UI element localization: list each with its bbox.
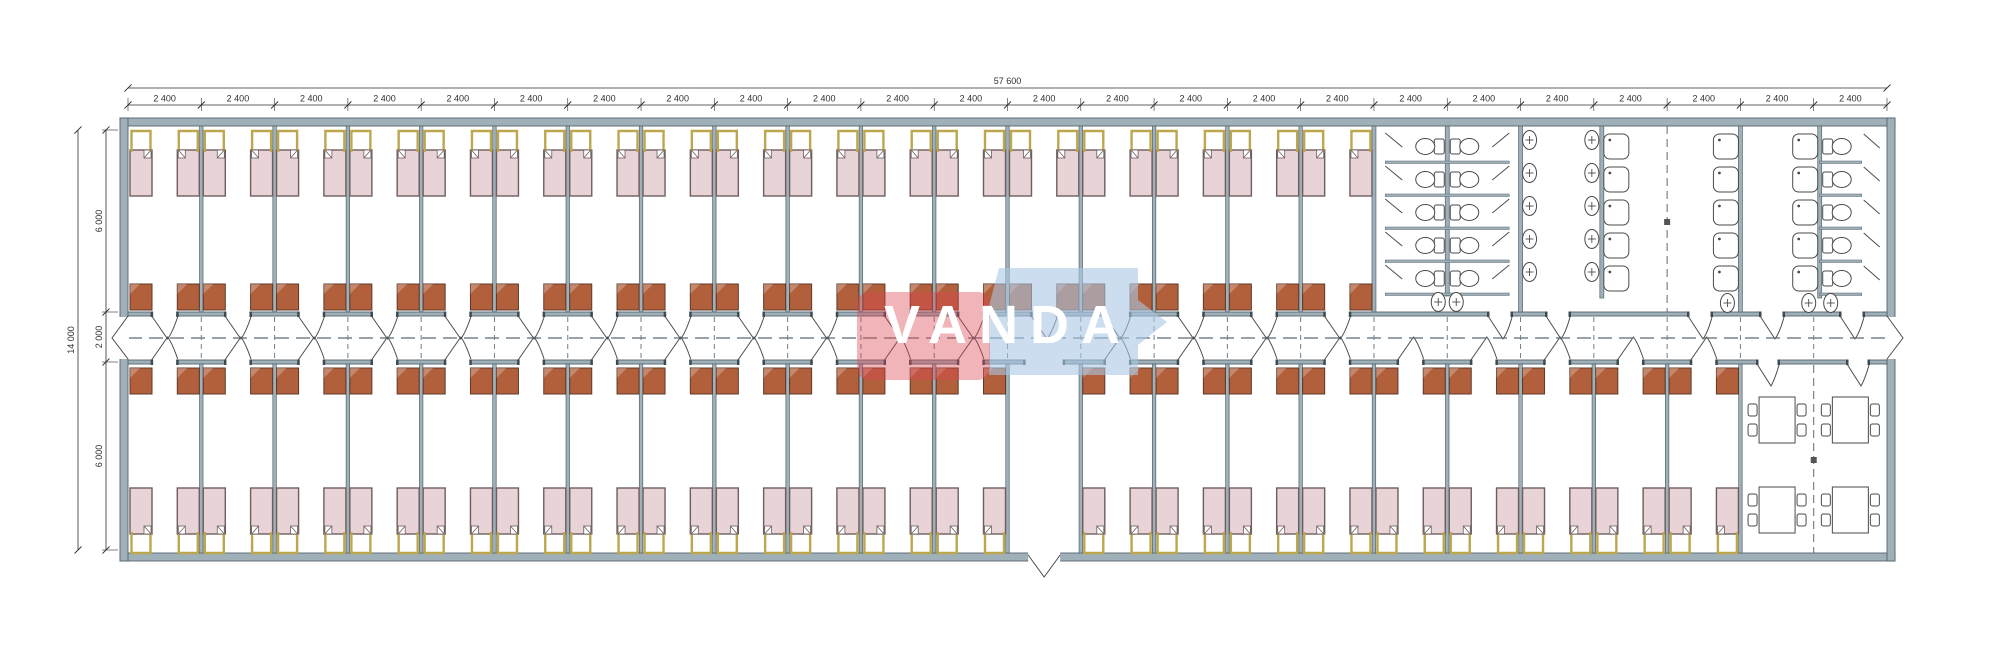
door-jamb [151,360,154,366]
dimension-label: 2 400 [1546,94,1569,104]
bed-headboard [351,532,370,553]
corridor-wall-bottom [471,360,518,364]
door-jamb [1690,360,1693,366]
door-jamb [590,360,593,366]
bed-headboard [1498,532,1517,553]
corridor-wall-bottom [1717,360,1757,364]
dimension-label: 2 400 [886,94,909,104]
corridor-wall-bottom [1204,360,1251,364]
chair [1821,494,1830,506]
door-swing [1178,337,1204,360]
partition-wall-top [346,126,350,312]
shower-drain [1797,172,1800,175]
bed-headboard [912,131,931,152]
watermark-text: VANDA [884,295,1132,355]
dimension-label: 2 400 [960,94,983,104]
corridor-wall-bottom [544,360,591,364]
door-swing [591,316,617,339]
bed-headboard [498,131,517,152]
bed-headboard [179,131,198,152]
bed-headboard [545,532,564,553]
toilet-bowl [1416,139,1435,155]
bed-headboard [1058,131,1077,152]
corridor-wall-top [324,312,371,316]
door-swing [372,337,398,360]
corridor-wall-top [1712,312,1760,316]
door-jamb [1276,360,1279,366]
bed-headboard [1304,131,1323,152]
shower-drain [1608,205,1611,208]
partition-wall-bottom [493,364,497,553]
entrance [1028,552,1060,577]
corridor-wall-bottom [617,360,664,364]
partition-wall-top [419,126,423,312]
chair [1748,494,1757,506]
exterior-wall-top [120,118,1895,126]
bed-headboard [1231,131,1250,152]
toilet-cistern [1434,271,1444,286]
bed-headboard [205,131,224,152]
door-jamb [1783,312,1786,318]
door-swing [298,316,324,339]
bed-headboard [765,532,784,553]
dimension-label: 2 400 [520,94,543,104]
partition-wall-top [1299,126,1303,312]
bed-headboard [645,131,664,152]
chair [1797,494,1806,506]
partition-wall-bottom [1592,364,1596,553]
bed-headboard [1524,532,1543,553]
shower-tray [1713,167,1738,192]
dimension-label: 2 400 [1839,94,1862,104]
stall-partition [1385,227,1509,230]
door-jamb [469,312,472,318]
stall-door [1385,166,1402,180]
bed-headboard [425,532,444,553]
shower-drain [1608,271,1611,274]
bed-headboard [1718,532,1737,553]
shower-tray [1604,134,1629,159]
door-jamb [1778,360,1781,366]
corridor-wall-bottom [398,360,445,364]
door-jamb [689,360,692,366]
corridor-wall-bottom [128,360,152,364]
door-jamb [1569,312,1572,318]
corridor-wall-bottom [1869,360,1887,364]
toilet-cistern [1450,172,1460,187]
partition-wall-bottom [1299,364,1303,553]
partition-wall-bottom [566,364,570,553]
stall-door [1385,232,1402,246]
dimension-label: 2 400 [1106,94,1129,104]
stall-door [1492,133,1509,147]
door-swing [1617,337,1643,360]
bed-headboard [718,532,737,553]
door-swing [1847,364,1869,386]
wall-opening [1886,317,1896,359]
shower-tray [1713,200,1738,225]
dimension-label: 2 400 [1473,94,1496,104]
corridor-wall-top [544,312,591,316]
sanitary-wall [1600,126,1604,298]
door-swing [445,337,471,360]
door-swing [518,316,544,339]
toilet-bowl [1416,238,1435,254]
stall-door [1864,134,1880,148]
door-jamb [664,360,667,366]
door-jamb [616,360,619,366]
partition-wall-top [273,126,277,312]
bed-headboard [325,532,344,553]
shower-drain [1797,139,1800,142]
stall-door [1864,167,1880,181]
corridor-wall-bottom [251,360,298,364]
corridor-wall-top [128,312,152,316]
stall-partition [1820,260,1862,263]
bed-headboard [1011,131,1030,152]
toilet-bowl [1832,172,1851,188]
watermark-logo: VANDA [857,268,1167,380]
shower-tray [1604,266,1629,291]
door-jamb [224,360,227,366]
door-jamb [176,312,179,318]
bed-headboard [1451,532,1470,553]
bed-headboard [718,131,737,152]
corridor-wall-top [1350,312,1488,316]
chair [1821,404,1830,416]
sanitary-wall [1519,126,1523,312]
toilet-bowl [1460,205,1479,221]
partition-wall-bottom [1152,364,1156,553]
toilet-cistern [1450,205,1460,220]
door-swing [591,337,617,360]
door-jamb [836,312,839,318]
partition-wall-top [566,126,570,312]
door-swing [225,316,251,339]
chair [1821,514,1830,526]
corridor-wall-top [398,312,445,316]
door-jamb [323,312,326,318]
chair [1870,424,1879,436]
toilet-cistern [1823,139,1833,154]
door-jamb [543,360,546,366]
dimension-label: 2 000 [94,326,104,349]
chair [1870,404,1879,416]
door-swing [1324,316,1350,339]
door-swing [445,316,471,339]
toilet-bowl [1416,205,1435,221]
dimension-label: 2 400 [1253,94,1276,104]
dimension-label: 2 400 [373,94,396,104]
toilet-cistern [1450,271,1460,286]
sanitary-wall [1738,126,1742,312]
door-jamb [1470,360,1473,366]
bed-headboard [1351,532,1370,553]
corridor-wall-bottom [1779,360,1847,364]
bed-headboard [205,532,224,553]
toilet-cistern [1450,139,1460,154]
dimension-label: 2 400 [447,94,470,104]
shower-drain [1718,205,1721,208]
chair [1870,514,1879,526]
door-jamb [396,360,399,366]
partition-wall-top [1152,126,1156,312]
shower-tray [1604,167,1629,192]
corridor-wall-bottom [1643,360,1690,364]
door-jamb [469,360,472,366]
partition-wall-bottom [419,364,423,553]
sanitary-wall [1818,126,1822,298]
shower-drain [1608,238,1611,241]
bed-headboard [1205,532,1224,553]
dimension-label: 2 400 [740,94,763,104]
door-jamb [1177,360,1180,366]
toilet-bowl [1416,271,1435,287]
door-swing [1251,316,1277,339]
stall-partition [1820,194,1862,197]
bed-headboard [571,131,590,152]
section-marker [1811,457,1817,463]
dining-table [1832,397,1868,443]
door-jamb [1715,360,1718,366]
stall-door [1864,233,1880,247]
door-swing [1178,316,1204,339]
door-jamb [323,360,326,366]
corridor-wall-top [1277,312,1324,316]
partition-wall-top [200,126,204,312]
dimension-label: 2 400 [1619,94,1642,104]
sanitary-wall [1445,126,1449,296]
bed-headboard [838,532,857,553]
shower-tray [1604,233,1629,258]
shower-drain [1608,139,1611,142]
stall-door [1492,265,1509,279]
corridor-wall-bottom [764,360,811,364]
partition-wall-bottom [1226,364,1230,553]
shower-drain [1718,271,1721,274]
bed-headboard [325,131,344,152]
door-jamb [297,360,300,366]
partition-wall-bottom [786,364,790,553]
door-jamb [396,312,399,318]
bed-headboard [179,532,198,553]
door-jamb [762,360,765,366]
partition-wall-top [786,126,790,312]
bed-headboard [1377,532,1396,553]
bed-headboard [791,131,810,152]
door-swing [372,316,398,339]
bed-headboard [1351,131,1370,152]
bed-headboard [1304,532,1323,553]
shower-tray [1713,134,1738,159]
toilet-cistern [1434,139,1444,154]
door-jamb [836,360,839,366]
corridor-wall-top [764,312,811,316]
bed-headboard [1571,532,1590,553]
corridor-wall-bottom [1497,360,1544,364]
dimension-label: 2 400 [1693,94,1716,104]
stall-door [1492,232,1509,246]
dimension-label: 14 000 [66,326,76,354]
door-jamb [810,360,813,366]
door-jamb [543,312,546,318]
bed-headboard [498,532,517,553]
partition-wall-bottom [1739,364,1743,553]
bed-headboard [619,532,638,553]
partition-wall-bottom [713,364,717,553]
bed-headboard [692,532,711,553]
bed-headboard [1205,131,1224,152]
corridor-wall-top [1570,312,1688,316]
toilet-cistern [1450,238,1460,253]
dimension-label: 57 600 [994,76,1022,86]
toilet-bowl [1832,205,1851,221]
stall-door [1864,200,1880,214]
corridor-wall-bottom [178,360,225,364]
door-jamb [689,312,692,318]
door-jamb [249,312,252,318]
door-jamb [1616,360,1619,366]
door-jamb [176,360,179,366]
stall-partition [1385,260,1509,263]
partition-wall-bottom [1079,364,1083,553]
shower-tray [1713,233,1738,258]
door-swing [811,337,837,360]
shower-tray [1713,266,1738,291]
door-jamb [1863,312,1866,318]
stall-partition [1820,293,1862,296]
door-swing [1471,337,1497,360]
dimension-label: 2 400 [666,94,689,104]
corridor-wall-top [251,312,298,316]
partition-wall-top [493,126,497,312]
dimension-label: 6 000 [94,445,104,468]
bed-headboard [472,131,491,152]
shower-drain [1718,238,1721,241]
corridor-wall-bottom [324,360,371,364]
toilet-bowl [1460,271,1479,287]
door-swing [152,316,178,339]
bed-headboard [1597,532,1616,553]
door-swing [1760,316,1784,339]
bed-headboard [1132,131,1151,152]
dining-table [1759,487,1795,533]
bed-headboard [645,532,664,553]
stall-partition [1385,293,1509,296]
corridor-wall-top [178,312,225,316]
corridor-wall-bottom [1570,360,1617,364]
bed-headboard [132,532,151,553]
dimension-label: 2 400 [1326,94,1349,104]
bed-headboard [1278,532,1297,553]
partition-wall-bottom [1446,364,1450,553]
dimension-label: 2 400 [153,94,176,104]
door-jamb [1422,360,1425,366]
toilet-bowl [1832,271,1851,287]
bed-headboard [1158,131,1177,152]
bed-headboard [399,532,418,553]
bed-headboard [1132,532,1151,553]
door-jamb [1711,312,1714,318]
door-jamb [1569,360,1572,366]
chair [1870,494,1879,506]
bed-headboard [545,131,564,152]
partition-wall-bottom [859,364,863,553]
partition-wall-bottom [1519,364,1523,553]
door-jamb [1495,360,1498,366]
door-jamb [444,360,447,366]
bed-headboard [1671,532,1690,553]
door-jamb [737,360,740,366]
corridor-wall-bottom [1277,360,1324,364]
toilet-cistern [1434,205,1444,220]
shower-tray [1793,266,1818,291]
toilet-bowl [1460,238,1479,254]
corridor-wall-top [1864,312,1887,316]
corridor-wall-top [471,312,518,316]
shower-drain [1797,205,1800,208]
door-jamb [1511,312,1514,318]
door-jamb [371,360,374,366]
door-swing [1488,316,1512,339]
chair [1748,404,1757,416]
bed-headboard [399,131,418,152]
shower-drain [1718,172,1721,175]
bed-headboard [1645,532,1664,553]
corridor-wall-bottom [691,360,738,364]
door-swing [811,316,837,339]
stall-door [1492,199,1509,213]
bed-headboard [938,532,957,553]
shower-drain [1797,271,1800,274]
wall-opening [1028,552,1060,562]
door-jamb [762,312,765,318]
toilet-cistern [1823,271,1833,286]
partition-wall-bottom [1665,364,1669,553]
shower-drain [1797,238,1800,241]
door-jamb [1202,312,1205,318]
dimension-label: 2 400 [1033,94,1056,104]
door-swing [1840,316,1864,339]
shower-tray [1793,134,1818,159]
bed-headboard [619,131,638,152]
stall-door [1385,199,1402,213]
corridor-wall-bottom [1350,360,1397,364]
door-swing [1324,337,1350,360]
bed-headboard [278,532,297,553]
chair [1797,424,1806,436]
door-swing [225,337,251,360]
partition-wall-top [713,126,717,312]
shower-tray [1793,200,1818,225]
stall-partition [1820,227,1862,230]
bed-headboard [1084,532,1103,553]
door-jamb [1276,312,1279,318]
corridor-wall-top [1512,312,1546,316]
door-swing [1691,337,1717,360]
partition-wall-top [932,126,936,312]
door-swing [665,316,691,339]
stall-partition [1385,194,1509,197]
bed-headboard [985,532,1004,553]
toilet-cistern [1823,172,1833,187]
dimension-label: 2 400 [1399,94,1422,104]
toilet-bowl [1460,139,1479,155]
bed-headboard [938,131,957,152]
partition-wall-bottom [200,364,204,553]
bed-headboard [278,131,297,152]
dimension-label: 2 400 [813,94,836,104]
